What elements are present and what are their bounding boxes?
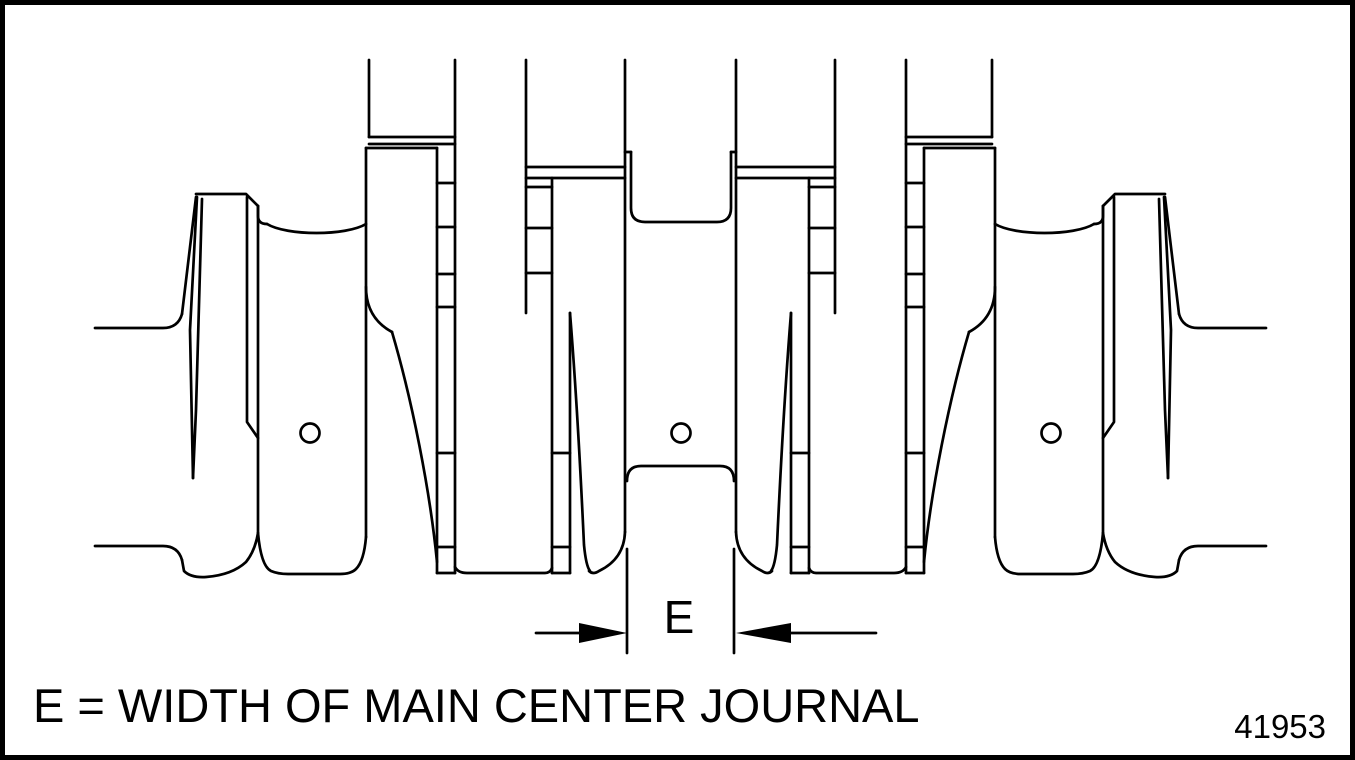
dimension-label-E: E: [664, 591, 695, 643]
figure-caption: E = WIDTH OF MAIN CENTER JOURNAL: [33, 679, 920, 732]
figure-border: [3, 3, 1353, 758]
crankshaft-drawing: E E = WIDTH OF MAIN CENTER JOURNAL 41953: [0, 0, 1355, 760]
manual-figure: E E = WIDTH OF MAIN CENTER JOURNAL 41953: [0, 0, 1355, 760]
figure-number: 41953: [1234, 708, 1326, 745]
